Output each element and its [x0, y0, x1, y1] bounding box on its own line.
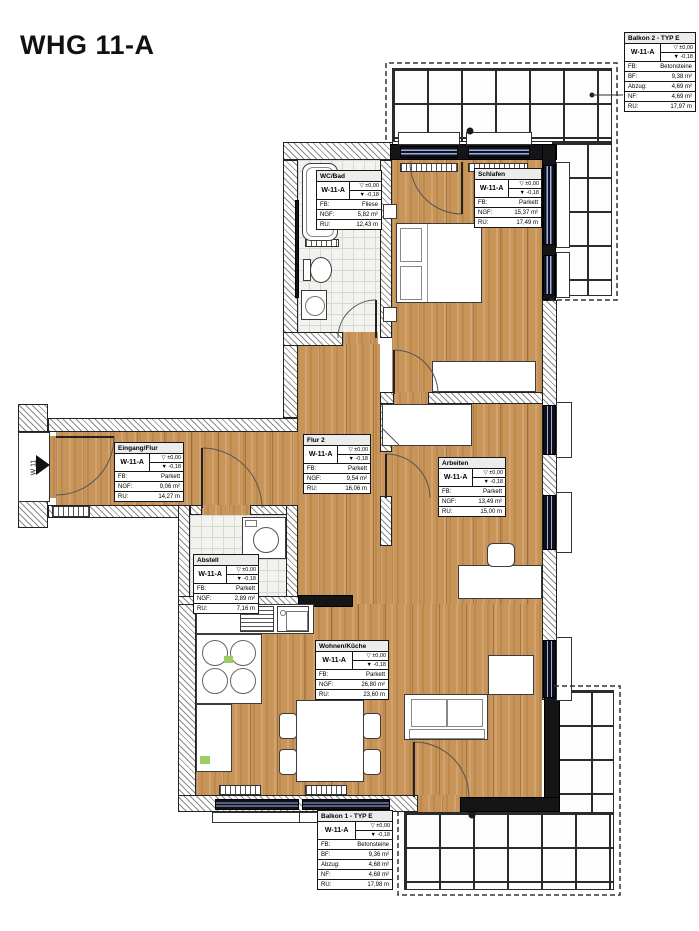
- unit-label: W-11-A: [316, 652, 353, 669]
- level-top: ▽ ±0,00: [356, 822, 392, 831]
- row-value: 2,89 m²: [235, 596, 255, 602]
- room-info-balkon-1: Balkon 1 - TYP E W-11-A ▽ ±0,00 ▼ -0,18 …: [317, 810, 393, 890]
- room-info-wc-bad: WC/Bad W-11-A ▽ ±0,00 ▼ -0,18 FB:Fliese …: [316, 170, 382, 230]
- level-bottom: ▼ -0,18: [353, 661, 388, 669]
- desk: [458, 565, 542, 599]
- row-key: NF:: [321, 872, 331, 878]
- row-key: NGF:: [118, 484, 132, 490]
- window-wohnen-bottom-1: [215, 799, 299, 810]
- nightstand: [383, 307, 397, 322]
- dining-table: [296, 700, 364, 782]
- balcony-door-schlafen: [543, 165, 555, 245]
- radiator: [400, 163, 458, 172]
- row-value: Parkett: [483, 489, 502, 495]
- row-key: BF:: [628, 74, 637, 80]
- room-info-abstell: Abstell W-11-A ▽ ±0,00 ▼ -0,18 FB:Parket…: [193, 554, 259, 614]
- wall: [380, 496, 392, 546]
- level-bottom: ▼ -0,18: [350, 191, 381, 199]
- row-key: FB:: [321, 842, 330, 848]
- wall: [18, 500, 48, 528]
- window-sill: [466, 132, 532, 145]
- level-top: ▽ ±0,00: [509, 180, 541, 189]
- row-value: Betonsteine: [357, 842, 389, 848]
- level-top: ▽ ±0,00: [350, 182, 381, 191]
- row-value: 4,69 m²: [672, 84, 692, 90]
- row-value: 4,69 m²: [672, 94, 692, 100]
- desk-chair: [487, 543, 515, 567]
- level-bottom: ▼ -0,18: [150, 463, 183, 471]
- level-bottom: ▼ -0,18: [356, 831, 392, 839]
- row-key: FB:: [197, 586, 206, 592]
- unit-label: W-11-A: [304, 446, 338, 463]
- window-wohnen-right: [543, 640, 556, 698]
- wall-balcony-1-side: [544, 688, 560, 798]
- row-key: NGF:: [320, 212, 334, 218]
- floor-door-opening-bad: [343, 332, 378, 344]
- row-value: Fliese: [362, 202, 378, 208]
- room-name: Balkon 1 - TYP E: [318, 811, 392, 822]
- highlight-mark: [224, 656, 233, 663]
- cooktop-counter: [196, 634, 262, 704]
- level-top: ▽ ±0,00: [661, 44, 695, 53]
- row-key: NF:: [628, 94, 638, 100]
- row-value: 13,49 m²: [478, 499, 502, 505]
- level-top: ▽ ±0,00: [150, 454, 183, 463]
- room-name: Arbeiten: [439, 458, 505, 469]
- room-info-balkon-2: Balkon 2 - TYP E W-11-A ▽ ±0,00 ▼ -0,18 …: [624, 32, 696, 112]
- wall: [18, 404, 48, 432]
- floor-door-opening-schlafen: [394, 392, 428, 404]
- room-name: Abstell: [194, 555, 258, 566]
- page-title: WHG 11-A: [20, 30, 155, 61]
- row-value: Betonsteine: [660, 64, 692, 70]
- row-value: 17,98 m: [367, 882, 389, 888]
- window-schlafen-top-1: [400, 146, 458, 158]
- room-info-wohnen-kueche: Wohnen/Küche W-11-A ▽ ±0,00 ▼ -0,18 FB:P…: [315, 640, 389, 700]
- row-key: FB:: [320, 202, 329, 208]
- single-bed: [382, 404, 472, 446]
- row-value: Parkett: [348, 466, 367, 472]
- unit-label: W-11-A: [115, 454, 150, 471]
- highlight-mark: [200, 756, 210, 764]
- unit-label: W-11-A: [475, 180, 509, 197]
- row-value: 4,68 m²: [369, 872, 389, 878]
- row-value: Parkett: [236, 586, 255, 592]
- row-key: FB:: [319, 672, 328, 678]
- row-key: NGF:: [307, 476, 321, 482]
- level-bottom: ▼ -0,18: [509, 189, 541, 197]
- row-key: NGF:: [442, 499, 456, 505]
- chair: [279, 749, 297, 775]
- window-sill: [556, 402, 572, 458]
- wall: [178, 604, 196, 804]
- radiator: [305, 785, 347, 795]
- row-value: 15,37 m²: [514, 210, 538, 216]
- row-value: 7,16 m: [237, 606, 255, 612]
- row-key: NGF:: [319, 682, 333, 688]
- window-sill: [556, 162, 570, 248]
- floor-door-opening-balkon-1: [415, 795, 460, 812]
- balcony-1-tiles-bottom: [404, 812, 614, 890]
- row-value: 26,80 m²: [361, 682, 385, 688]
- wall-shaft: [295, 200, 299, 298]
- floor-door-opening-arbeiten: [380, 452, 392, 496]
- row-key: RU:: [118, 494, 128, 500]
- row-key: Abzug:: [321, 862, 340, 868]
- row-value: 16,06 m: [345, 486, 367, 492]
- wall: [428, 392, 557, 404]
- room-name: Wohnen/Küche: [316, 641, 388, 652]
- chair: [363, 713, 381, 739]
- room-name: Eingang/Flur: [115, 443, 183, 454]
- row-key: NGF:: [478, 210, 492, 216]
- entrance-label: W 11: [30, 459, 37, 475]
- row-value: Parkett: [161, 474, 180, 480]
- window-arbeiten-1: [543, 405, 556, 455]
- room-info-schlafen: Schlafen W-11-A ▽ ±0,00 ▼ -0,18 FB:Parke…: [474, 168, 542, 228]
- row-value: 9,36 m²: [369, 852, 389, 858]
- level-top: ▽ ±0,00: [227, 566, 258, 575]
- row-value: 9,06 m²: [160, 484, 180, 490]
- wall: [190, 505, 202, 515]
- room-name: WC/Bad: [317, 171, 381, 182]
- unit-label: W-11-A: [317, 182, 350, 199]
- sofa: [404, 694, 488, 740]
- row-value: 17,97 m: [670, 104, 692, 110]
- row-value: 15,00 m: [480, 509, 502, 515]
- row-key: RU:: [478, 220, 488, 226]
- wall-balcony-1: [460, 797, 560, 812]
- room-name: Schlafen: [475, 169, 541, 180]
- wall: [286, 505, 298, 604]
- row-key: RU:: [320, 222, 330, 228]
- chair: [363, 749, 381, 775]
- row-value: Parkett: [366, 672, 385, 678]
- row-key: RU:: [628, 104, 638, 110]
- washing-machine: [242, 517, 286, 559]
- row-key: NGF:: [197, 596, 211, 602]
- balcony-2-tiles-top: [392, 68, 612, 142]
- row-key: FB:: [478, 200, 487, 206]
- row-key: FB:: [442, 489, 451, 495]
- wall: [283, 332, 343, 346]
- row-key: RU:: [307, 486, 317, 492]
- room-info-eingang-flur: Eingang/Flur W-11-A ▽ ±0,00 ▼ -0,18 FB:P…: [114, 442, 184, 502]
- floor-plan: WHG 11-A: [0, 0, 699, 931]
- window-sill: [212, 812, 300, 823]
- kitchen-sink: [277, 606, 309, 632]
- floor-opening-flur-wohnen: [380, 545, 392, 604]
- level-bottom: ▼ -0,18: [338, 455, 370, 463]
- row-value: 4,68 m²: [369, 862, 389, 868]
- unit-label: W-11-A: [194, 566, 227, 583]
- room-name: Balkon 2 - TYP E: [625, 33, 695, 44]
- row-value: 5,82 m²: [358, 212, 378, 218]
- row-value: Parkett: [519, 200, 538, 206]
- wall: [178, 505, 190, 604]
- row-value: 9,54 m²: [347, 476, 367, 482]
- window-schlafen-right: [543, 255, 555, 295]
- wall: [380, 392, 394, 404]
- window-sill: [556, 492, 572, 553]
- level-bottom: ▼ -0,18: [227, 575, 258, 583]
- row-key: Abzug:: [628, 84, 647, 90]
- wall: [283, 345, 298, 418]
- sink: [301, 290, 327, 320]
- wardrobe: [432, 361, 536, 392]
- level-top: ▽ ±0,00: [473, 469, 505, 478]
- room-info-arbeiten: Arbeiten W-11-A ▽ ±0,00 ▼ -0,18 FB:Parke…: [438, 457, 506, 517]
- row-value: 12,43 m: [356, 222, 378, 228]
- wall: [283, 142, 393, 160]
- row-key: FB:: [628, 64, 637, 70]
- row-value: 9,38 m²: [672, 74, 692, 80]
- room-name: Flur 2: [304, 435, 370, 446]
- toilet: [310, 257, 332, 283]
- wall: [250, 505, 290, 515]
- radiator: [219, 785, 261, 795]
- level-bottom: ▼ -0,18: [473, 478, 505, 486]
- radiator: [52, 506, 90, 517]
- wall: [48, 418, 298, 432]
- window-sill: [398, 132, 460, 145]
- sideboard: [488, 655, 534, 695]
- row-value: 14,27 m: [158, 494, 180, 500]
- level-top: ▽ ±0,00: [353, 652, 388, 661]
- room-info-flur-2: Flur 2 W-11-A ▽ ±0,00 ▼ -0,18 FB:Parkett…: [303, 434, 371, 494]
- chair: [279, 713, 297, 739]
- unit-label: W-11-A: [318, 822, 356, 839]
- level-bottom: ▼ -0,18: [661, 53, 695, 61]
- floor-door-opening-abstell: [202, 505, 250, 515]
- entrance-label-box: W 11: [18, 432, 50, 502]
- row-key: BF:: [321, 852, 330, 858]
- row-key: RU:: [321, 882, 331, 888]
- row-key: FB:: [118, 474, 127, 480]
- unit-label: W-11-A: [625, 44, 661, 61]
- row-key: RU:: [197, 606, 207, 612]
- row-value: 23,60 m: [363, 692, 385, 698]
- window-arbeiten-2: [543, 495, 556, 550]
- unit-label: W-11-A: [439, 469, 473, 486]
- level-top: ▽ ±0,00: [338, 446, 370, 455]
- window-sill: [556, 252, 570, 298]
- window-sill: [556, 637, 572, 701]
- row-key: RU:: [319, 692, 329, 698]
- window-schlafen-top-2: [468, 146, 530, 158]
- window-wohnen-bottom-2: [302, 799, 390, 810]
- row-value: 17,49 m: [516, 220, 538, 226]
- double-bed: [396, 223, 482, 303]
- row-key: FB:: [307, 466, 316, 472]
- nightstand: [383, 204, 397, 219]
- row-key: RU:: [442, 509, 452, 515]
